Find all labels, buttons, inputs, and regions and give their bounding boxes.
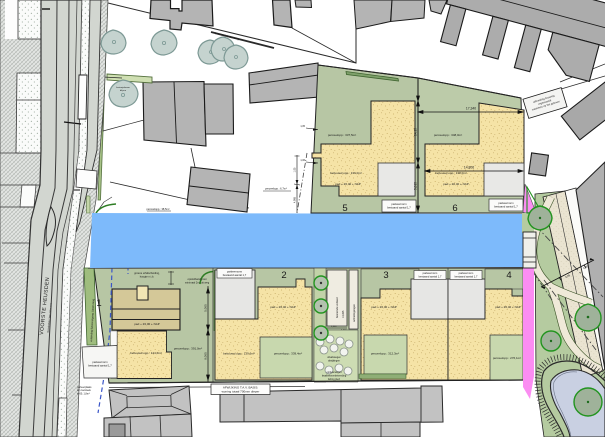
svg-text:parkeernorm: parkeernorm xyxy=(391,202,407,206)
svg-text:13,265: 13,265 xyxy=(342,310,345,318)
svg-text:bestaand aantal 1,7: bestaand aantal 1,7 xyxy=(223,273,247,277)
svg-text:5: 5 xyxy=(342,203,347,214)
svg-text:pad + 26,40 + NAP: pad + 26,40 + NAP xyxy=(443,182,469,186)
svg-text:5,065: 5,065 xyxy=(204,304,208,312)
svg-text:woning totaal 700mm dieper: woning totaal 700mm dieper xyxy=(222,390,260,394)
svg-text:bebouwd opp.: 136,0m²: bebouwd opp.: 136,0m² xyxy=(330,171,362,175)
svg-text:perceelopp.: 348,0m²: perceelopp.: 348,0m² xyxy=(434,133,462,137)
svg-text:4,985: 4,985 xyxy=(294,196,297,203)
svg-text:pad + 26,40 + NAP: pad + 26,40 + NAP xyxy=(495,305,521,309)
svg-text:perceelopp.: 276,1m²: perceelopp.: 276,1m² xyxy=(493,356,521,360)
svg-text:3,300: 3,300 xyxy=(331,326,337,328)
svg-text:5,015: 5,015 xyxy=(414,182,418,190)
svg-text:6: 6 xyxy=(452,203,457,214)
svg-text:2: 2 xyxy=(281,270,286,281)
svg-text:farting plezi: farting plezi xyxy=(328,378,341,381)
svg-text:bestaand aantal 1,7: bestaand aantal 1,7 xyxy=(419,275,442,279)
svg-text:9,065: 9,065 xyxy=(204,352,208,360)
svg-text:bestaand aantal 1,7: bestaand aantal 1,7 xyxy=(455,275,478,279)
svg-text:perceelopp.: 339,4m²: perceelopp.: 339,4m² xyxy=(274,352,302,356)
svg-text:4: 4 xyxy=(506,270,511,281)
svg-text:parkeernorm: parkeernorm xyxy=(423,271,438,275)
svg-text:3: 3 xyxy=(383,270,388,281)
svg-text:parkeernorm: parkeernorm xyxy=(459,271,474,275)
svg-text:groene erfafscheiding,: groene erfafscheiding, xyxy=(134,271,160,275)
svg-text:achteringangen: achteringangen xyxy=(352,304,356,322)
svg-text:perceelopp.: 38,5m²: perceelopp.: 38,5m² xyxy=(146,207,169,211)
svg-text:14,15: 14,15 xyxy=(414,128,418,136)
svg-text:kastanjeboom: kastanjeboom xyxy=(116,86,130,89)
svg-text:bestaand aantal 1,7: bestaand aantal 1,7 xyxy=(88,364,112,368)
svg-text:bebouwd opp.: 144,0m²: bebouwd opp.: 144,0m² xyxy=(130,351,162,355)
svg-text:perceelopp.: 391,0m²: perceelopp.: 391,0m² xyxy=(174,347,202,351)
svg-text:pad + 26,00 + NAP: pad + 26,00 + NAP xyxy=(134,322,160,326)
svg-text:1,05: 1,05 xyxy=(294,167,297,172)
svg-text:minimaal 2m. uit weg: minimaal 2m. uit weg xyxy=(185,281,210,285)
svg-text:perceelopp.: 6,7m²: perceelopp.: 6,7m² xyxy=(265,187,287,191)
svg-text:parkeernorm: parkeernorm xyxy=(227,269,243,273)
svg-text:bestaand aantal 1,7: bestaand aantal 1,7 xyxy=(494,205,518,209)
svg-text:bestaand aantal 1,7: bestaand aantal 1,7 xyxy=(387,206,411,210)
svg-text:pad + 26,40 + NAP: pad + 26,40 + NAP xyxy=(335,182,361,186)
svg-text:bebouwd opp.: 138,0m²: bebouwd opp.: 138,0m² xyxy=(435,171,467,175)
svg-text:bebouwd opp.: 139,6m²: bebouwd opp.: 139,6m² xyxy=(223,352,255,356)
svg-text:pad + 26,40 + NAP: pad + 26,40 + NAP xyxy=(371,305,397,309)
svg-text:afwijkingen: afwijkingen xyxy=(328,359,340,362)
svg-text:pad + 26,40 + NAP: pad + 26,40 + NAP xyxy=(270,305,296,309)
svg-text:bestemde verkeer: bestemde verkeer xyxy=(335,297,339,318)
svg-text:1,06: 1,06 xyxy=(300,159,305,162)
svg-text:hoogte n.t.b.: hoogte n.t.b. xyxy=(140,275,155,279)
svg-text:in 60, 1,8m²: in 60, 1,8m² xyxy=(77,392,90,395)
svg-text:perceelopp.: 337,5m²: perceelopp.: 337,5m² xyxy=(328,133,356,137)
svg-text:parkeernorm: parkeernorm xyxy=(92,360,108,364)
svg-text:perceelopp.: 312,3m²: perceelopp.: 312,3m² xyxy=(371,352,399,356)
svg-text:opsluitband post: opsluitband post xyxy=(188,277,207,281)
svg-text:1: 1 xyxy=(96,298,101,309)
svg-text:parkeernorm: parkeernorm xyxy=(498,201,514,205)
svg-text:blijven: blijven xyxy=(120,90,127,92)
svg-text:17,340: 17,340 xyxy=(466,107,476,111)
svg-text:1,05: 1,05 xyxy=(300,125,305,128)
svg-text:14,806: 14,806 xyxy=(464,166,474,170)
